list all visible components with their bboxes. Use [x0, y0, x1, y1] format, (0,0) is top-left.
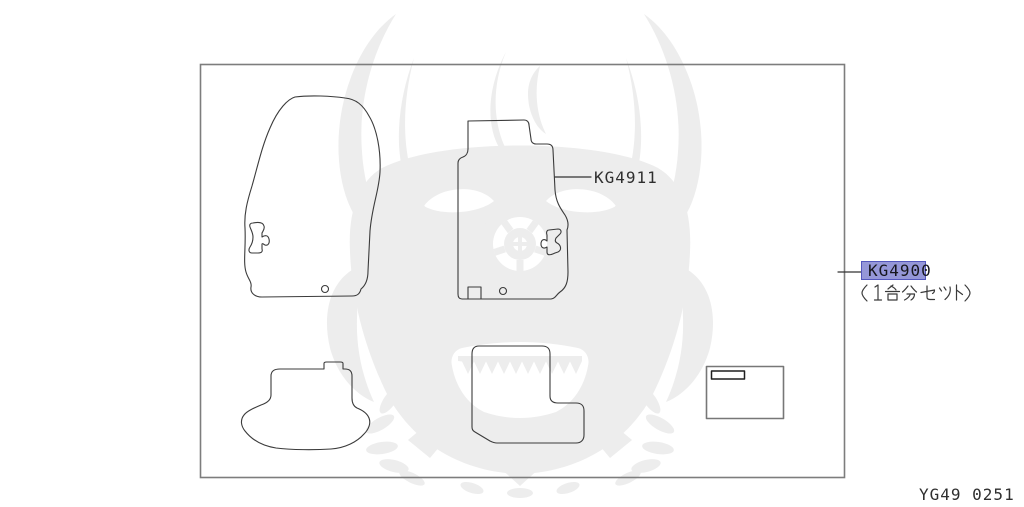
set-label-card: [707, 367, 784, 419]
mat-clip-cutout: [541, 229, 561, 255]
parts-diagram-page: KG4911 KG4900 （1台分セット） YG49 0251: [0, 0, 1024, 507]
diagram-line-art: [0, 0, 1024, 507]
mat-grommet-hole: [500, 288, 507, 295]
rear-right-mat-outline: [472, 346, 584, 443]
mat-heel-pad: [468, 287, 481, 299]
set-note-glyphs: [859, 284, 971, 302]
part-code-kg4900[interactable]: KG4900: [868, 263, 932, 279]
front-passenger-mat-outline: [458, 120, 568, 299]
set-note: （1台分セット）: [859, 284, 971, 302]
mat-clip-cutout: [249, 222, 269, 253]
diagram-frame: [201, 65, 845, 478]
diagram-sheet-code: YG49 0251: [919, 487, 1015, 503]
rear-left-mat-outline: [241, 362, 369, 450]
front-driver-mat-outline: [245, 96, 381, 297]
part-code-kg4911[interactable]: KG4911: [594, 170, 658, 186]
mat-grommet-hole: [322, 286, 329, 293]
